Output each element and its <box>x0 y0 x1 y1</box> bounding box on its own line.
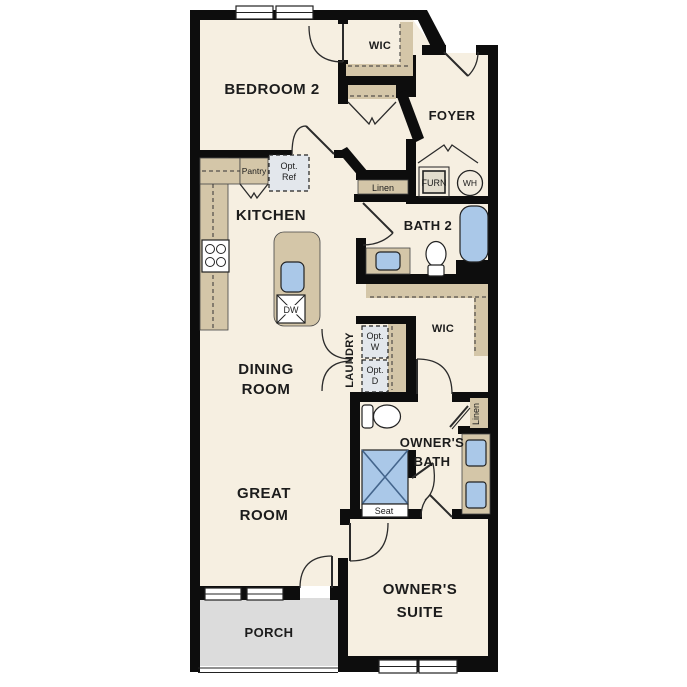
island-sink <box>281 262 304 292</box>
owners-sink-2 <box>466 482 486 508</box>
room-label-suite-2: SUITE <box>397 604 444 621</box>
window-greatroom-2 <box>247 588 283 600</box>
bath2-toilet <box>426 242 446 277</box>
room-label-kitchen: KITCHEN <box>236 207 306 224</box>
shower <box>362 450 408 504</box>
label-seat: Seat <box>375 506 394 516</box>
room-label-porch: PORCH <box>245 625 294 640</box>
wall-suite-bottom <box>338 656 498 672</box>
bath2-tub <box>460 206 488 262</box>
wall-laundry-wic-divider <box>406 316 416 402</box>
room-label-dining-1: DINING <box>238 361 294 378</box>
room-label-wic-mid: WIC <box>432 323 454 335</box>
wic-mid-shelf-right <box>474 298 488 356</box>
label-opt-dryer-1: Opt. <box>366 365 383 375</box>
room-label-bath2: BATH 2 <box>404 218 452 233</box>
wall-linen-hall-top <box>356 170 410 180</box>
wall-linen-hall-bottom <box>354 194 412 202</box>
wall-left-exterior <box>190 10 200 672</box>
room-label-ownersbath-2: BATH <box>414 454 451 469</box>
room-label-suite-1: OWNER'S <box>383 581 458 598</box>
owners-sink-1 <box>466 440 486 466</box>
label-water-heater: WH <box>463 178 477 188</box>
label-opt-ref-1: Opt. <box>280 161 297 171</box>
label-linen-hall: Linen <box>372 183 394 193</box>
room-label-laundry: LAUNDRY <box>344 332 356 388</box>
window-suite-1 <box>379 660 417 673</box>
range-stove <box>202 240 229 272</box>
label-linen-owner: Linen <box>471 403 481 425</box>
wall-wic-top-stub <box>338 10 348 24</box>
window-suite-2 <box>419 660 457 673</box>
floor-plan: BEDROOM 2 WIC FOYER KITCHEN BATH 2 DININ… <box>0 0 687 687</box>
label-pantry: Pantry <box>242 166 267 176</box>
wall-suite-west <box>338 558 348 660</box>
room-label-dining-2: ROOM <box>242 381 291 398</box>
room-label-great-1: GREAT <box>237 485 291 502</box>
bath2-sink <box>376 252 400 270</box>
room-label-ownersbath-1: OWNER'S <box>400 435 464 450</box>
label-opt-dryer-2: D <box>372 376 379 386</box>
room-label-foyer: FOYER <box>429 108 476 123</box>
floor-plan-svg: BEDROOM 2 WIC FOYER KITCHEN BATH 2 DININ… <box>0 0 687 687</box>
window-bedroom2-1 <box>236 6 273 19</box>
label-opt-washer-2: W <box>371 342 380 352</box>
wic-mid-shelf-top <box>366 284 488 298</box>
wall-bath2-west <box>356 238 366 280</box>
label-dishwasher: DW <box>284 305 299 315</box>
window-greatroom-1 <box>205 588 241 600</box>
label-opt-washer-1: Opt. <box>366 331 383 341</box>
label-furnace: FURN <box>422 178 447 188</box>
wall-under-tub <box>456 260 498 284</box>
room-label-great-2: ROOM <box>240 507 289 524</box>
window-bedroom2-2 <box>276 6 313 19</box>
wall-suite-west-stub <box>340 509 350 525</box>
wall-laundry-top <box>356 316 408 324</box>
wic-top-shelf-right <box>400 22 413 64</box>
laundry-shelf <box>388 324 406 392</box>
hall-coat-closet-shelf <box>348 85 396 99</box>
room-label-wic-top: WIC <box>369 40 391 52</box>
label-opt-ref-2: Ref <box>282 172 297 182</box>
wall-foyer-top-left <box>422 45 446 55</box>
wall-ownersbath-west <box>350 402 360 514</box>
wall-laundry-south <box>350 392 410 402</box>
wall-right-exterior <box>488 45 498 672</box>
owners-toilet <box>362 405 401 428</box>
room-label-bedroom2: BEDROOM 2 <box>224 81 319 98</box>
